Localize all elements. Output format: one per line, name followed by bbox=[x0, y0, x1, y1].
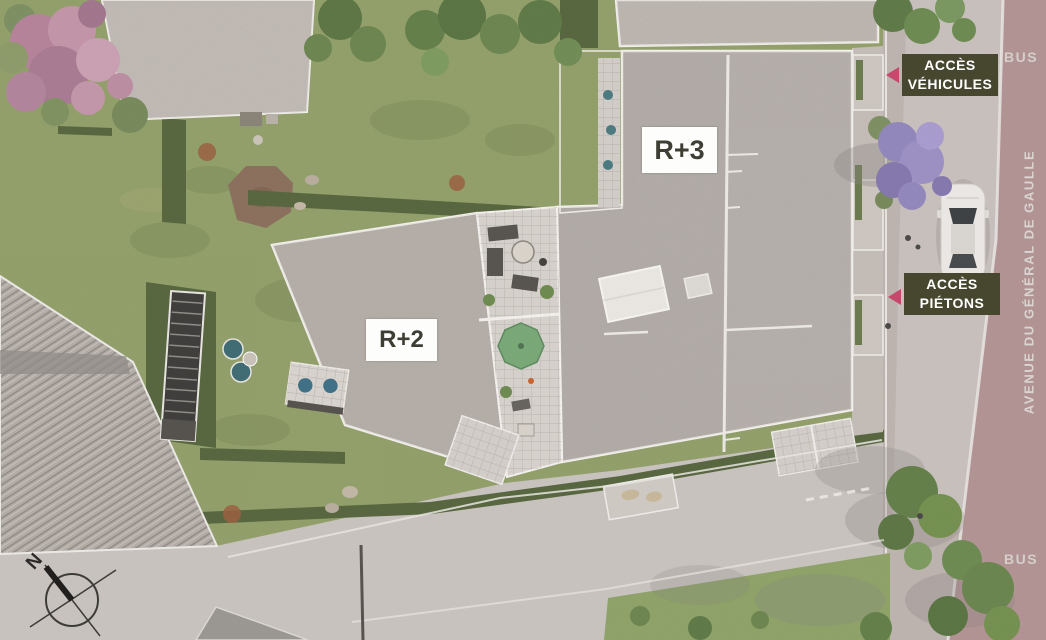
access-pedestrians-line2: PIÉTONS bbox=[904, 294, 1000, 313]
r2-text: R+2 bbox=[379, 326, 424, 354]
building-label-r2: R+2 bbox=[366, 319, 437, 361]
street-name: AVENUE DU GÉNÉRAL DE GAULLE bbox=[1022, 150, 1037, 414]
access-pedestrians-badge: ACCÈS PIÉTONS bbox=[904, 273, 1000, 315]
access-vehicles-arrow-icon bbox=[886, 67, 899, 83]
bus-stop-label-top: BUS bbox=[1004, 49, 1038, 65]
access-vehicles-badge: ACCÈS VÉHICULES bbox=[902, 54, 998, 96]
site-plan-artwork bbox=[0, 0, 1046, 640]
site-plan: R+3 R+2 ACCÈS VÉHICULES ACCÈS PIÉTONS BU… bbox=[0, 0, 1046, 640]
photo-grain bbox=[0, 0, 1046, 640]
access-vehicles-line2: VÉHICULES bbox=[902, 75, 998, 94]
building-label-r3: R+3 bbox=[642, 127, 717, 173]
access-pedestrians-line1: ACCÈS bbox=[904, 275, 1000, 294]
access-vehicles-line1: ACCÈS bbox=[902, 56, 998, 75]
bus-stop-label-bottom: BUS bbox=[1004, 551, 1038, 567]
access-pedestrians-arrow-icon bbox=[888, 289, 901, 305]
r3-text: R+3 bbox=[654, 135, 704, 166]
